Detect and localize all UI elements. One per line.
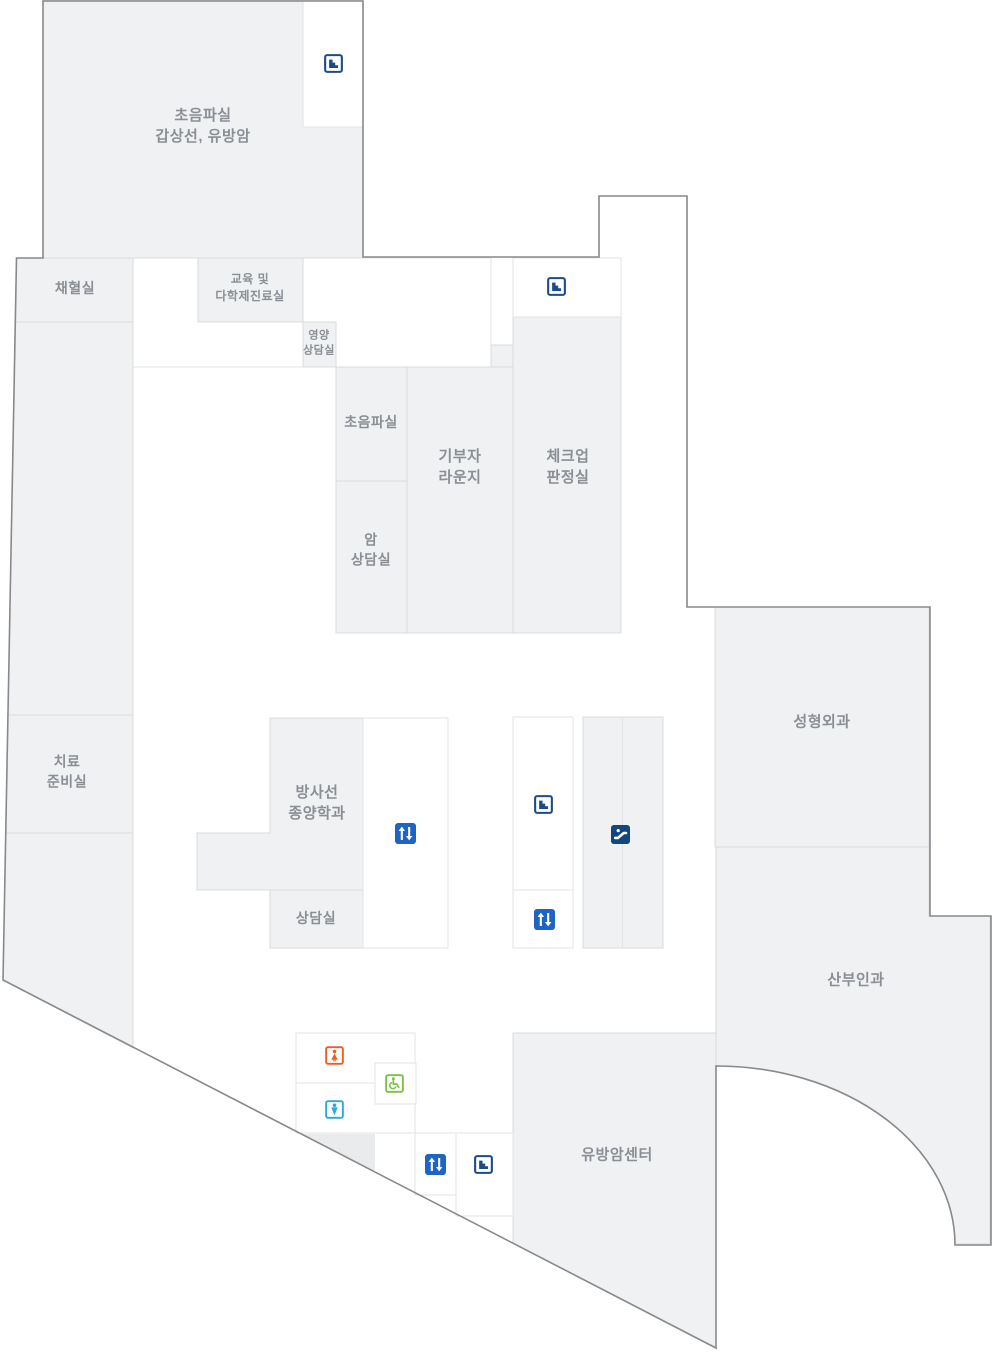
room-obgyn [716, 847, 990, 1244]
stairs-icon [474, 1155, 494, 1175]
room-label-breast-cancer-center: 유방암센터 [581, 1145, 653, 1166]
elevator-icon [395, 823, 415, 843]
room-label-checkup-judgement: 체크업 판정실 [547, 446, 590, 488]
room-breast-cancer-center [513, 1033, 716, 1348]
room-label-blood-collection: 채혈실 [55, 279, 95, 299]
floor-map: 초음파실 갑상선, 유방암 채혈실 교육 및 다학제진료실 영양 상담실 초음파… [0, 0, 992, 1353]
stairs-icon [534, 795, 554, 815]
male-restroom-icon [325, 1100, 345, 1120]
room-label-ultrasound: 초음파실 [344, 413, 398, 433]
female-restroom-icon [325, 1046, 345, 1066]
room-label-nutrition-counseling: 영양 상담실 [303, 329, 335, 360]
room-donor-lounge-step [491, 345, 513, 368]
room-label-education-multidisciplinary: 교육 및 다학제진료실 [215, 271, 284, 305]
room-label-radiation-oncology: 방사선 종양학과 [288, 782, 345, 824]
room-label-treatment-prep: 치료 준비실 [47, 752, 87, 791]
room-left-wing [8, 322, 133, 715]
stair-alcove-upper-right [513, 258, 621, 317]
elevator-icon [534, 909, 554, 929]
room-donor-lounge [407, 367, 513, 633]
stairs-icon [547, 277, 567, 297]
wheelchair-accessible-icon [385, 1074, 405, 1094]
room-label-obgyn: 산부인과 [827, 970, 884, 991]
room-label-ultrasound-thyroid-breast: 초음파실 갑상선, 유방암 [155, 105, 250, 147]
room-label-plastic-surgery: 성형외과 [793, 712, 850, 733]
escalator-icon [611, 825, 631, 845]
floor-plan-shapes [0, 0, 992, 1353]
room-label-counseling: 상담실 [296, 909, 336, 929]
stairs-icon [324, 54, 344, 74]
room-label-donor-lounge: 기부자 라운지 [439, 446, 482, 488]
room-label-cancer-counseling: 암 상담실 [351, 530, 391, 569]
elevator-icon [425, 1154, 445, 1174]
room-left-wing-lower [3, 833, 133, 1048]
